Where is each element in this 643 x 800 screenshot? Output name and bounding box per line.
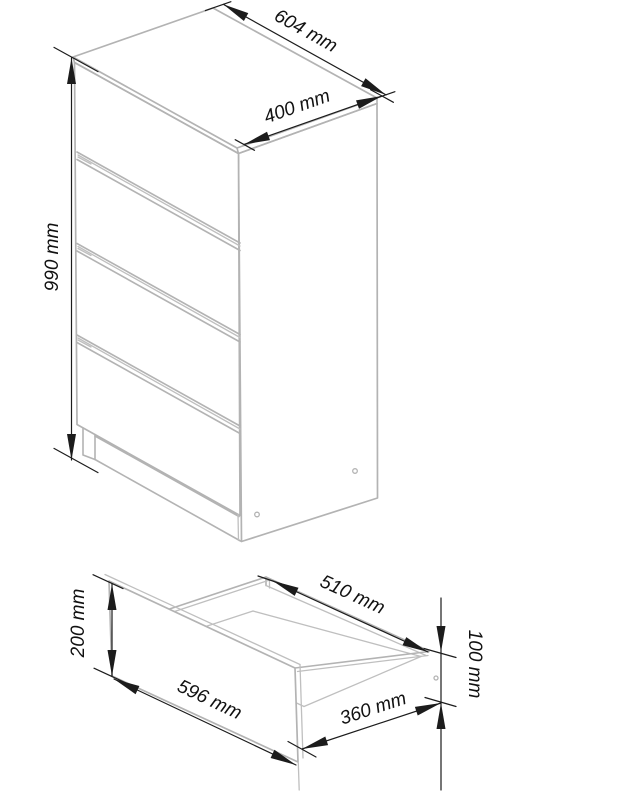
dim-label-drawer-front-height: 200 mm [68,589,89,659]
drawer-front-panel [109,581,298,762]
drawing-canvas: 990 mm 604 mm 400 mm 200 mm [0,0,643,800]
dim-drawer-inner-depth: 360 mm [288,688,441,757]
dimension-drawing: 990 mm 604 mm 400 mm 200 mm [0,0,643,800]
dim-label-drawer-side-height: 100 mm [464,630,485,699]
drawer-left-side-edge [168,577,270,613]
dim-drawer-side-height: 100 mm [424,598,485,790]
dim-label-drawer-inner-depth: 360 mm [337,688,409,729]
dim-label-chest-height: 990 mm [42,223,63,292]
chest-view [73,8,378,542]
drawer-side-hole [434,676,438,680]
chest-side-panel [239,104,378,542]
drawer-front-right-inner-edge [300,665,303,759]
drawer-front-edge-extension [298,763,299,790]
